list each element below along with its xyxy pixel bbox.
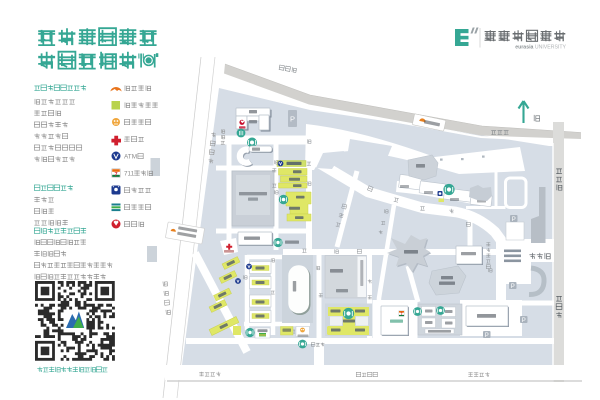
svg-text:P: P (485, 333, 489, 339)
svg-text:ATM: ATM (124, 154, 137, 161)
svg-text:P: P (511, 284, 515, 290)
svg-text:P: P (290, 115, 295, 124)
svg-text:7: 7 (114, 172, 117, 178)
svg-text:P: P (512, 217, 516, 223)
svg-text:eurasia UNIVERSITY: eurasia UNIVERSITY (515, 45, 566, 51)
svg-text:711: 711 (124, 171, 135, 178)
svg-text:P: P (522, 318, 526, 324)
svg-text:7: 7 (401, 312, 403, 316)
